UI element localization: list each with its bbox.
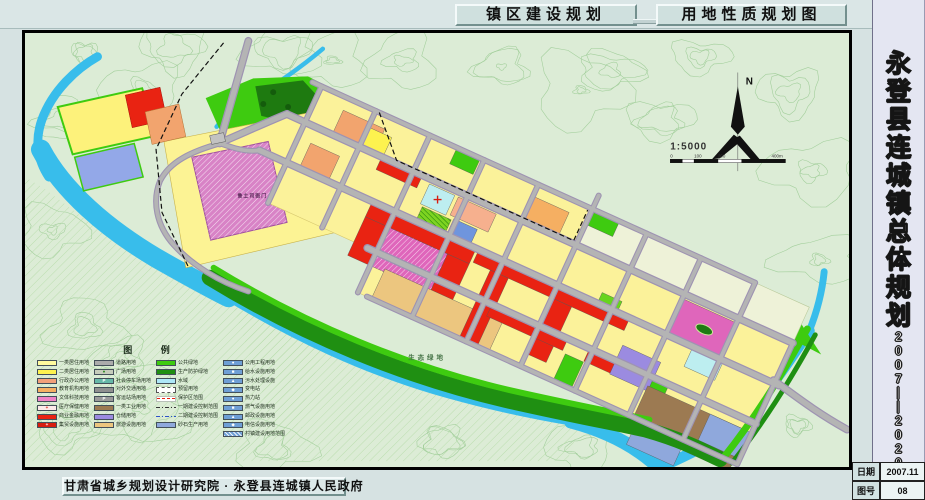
legend-item: 砂石生产用地 — [156, 422, 218, 429]
legend-swatch — [37, 378, 57, 384]
legend-swatch: ▲ — [223, 414, 243, 420]
legend-swatch: ◆ — [223, 387, 243, 393]
legend-item: ▲污水处理设施 — [223, 378, 285, 385]
legend-label: 邮政设施用地 — [245, 414, 275, 419]
legend-item: 一类居住用地 — [37, 360, 89, 367]
legend-item: 二类居住用地 — [37, 369, 89, 376]
legend-swatch: + — [37, 405, 57, 411]
legend-swatch: P — [94, 378, 114, 384]
legend-label: 商业金融用地 — [59, 414, 89, 419]
legend-swatch — [156, 405, 176, 411]
date-value: 2007.11 — [880, 462, 925, 481]
legend-swatch — [156, 387, 176, 393]
sidebar-title-char: 镇 — [886, 190, 911, 218]
legend-item: 旅游设施用地 — [94, 422, 151, 429]
legend-item: 文体科技用地 — [37, 396, 89, 403]
legend-swatch: ■ — [223, 369, 243, 375]
svg-text:生态绿地: 生态绿地 — [408, 353, 446, 362]
legend-swatch — [94, 387, 114, 393]
legend-item: 村镇建设用地范围 — [223, 431, 285, 438]
tab-landuse-map[interactable]: 用地性质规划图 — [656, 4, 847, 26]
legend-label: 保护区范围 — [178, 396, 203, 401]
sidebar-year-char: 2 — [895, 442, 902, 456]
sidebar-title-char: 登 — [886, 78, 911, 106]
svg-text:200: 200 — [718, 153, 726, 158]
legend-label: 热力站 — [245, 396, 260, 401]
legend-item: 行政办公用地 — [37, 378, 89, 385]
sidebar-year-char: 2 — [895, 330, 902, 344]
legend-swatch — [37, 414, 57, 420]
legend-item: ◆电信设施用地 — [223, 422, 285, 429]
legend-item: 道路用地 — [94, 360, 151, 367]
legend-label: 行政办公用地 — [59, 379, 89, 384]
legend-swatch: ■ — [223, 405, 243, 411]
legend-swatch: P — [94, 396, 114, 402]
legend-swatch — [156, 360, 176, 366]
titleblock-table: 日期 2007.11 图号 08 — [852, 462, 925, 500]
legend-swatch — [156, 378, 176, 384]
tab-construction-plan[interactable]: 镇区建设规划 — [455, 4, 637, 26]
legend-label: 集贸设施用地 — [59, 423, 89, 428]
svg-text:100: 100 — [694, 153, 702, 158]
legend-swatch — [37, 396, 57, 402]
legend-title: 图 例 — [93, 343, 213, 356]
legend-item: P社会停车场用地 — [94, 378, 151, 385]
legend-item: +医疗保健用地 — [37, 404, 89, 411]
legend-item: ●热力站 — [223, 396, 285, 403]
legend-label: 一类工业用地 — [116, 405, 146, 410]
legend-swatch: ◆ — [223, 422, 243, 428]
svg-text:N: N — [746, 76, 753, 87]
legend-swatch — [94, 414, 114, 420]
legend-label: 生产防护绿地 — [178, 370, 208, 375]
legend-item: 水域 — [156, 378, 218, 385]
sheet-number-label: 图号 — [852, 481, 880, 500]
legend-swatch — [37, 360, 57, 366]
legend-item: ■燃气设施用地 — [223, 404, 285, 411]
legend-label: 二类居住用地 — [59, 370, 89, 375]
legend-swatch — [37, 387, 57, 393]
date-label: 日期 — [852, 462, 880, 481]
sidebar-year-char: — — [892, 387, 906, 400]
sidebar-title-char: 永 — [886, 50, 911, 78]
legend-item: ●广场用地 — [94, 369, 151, 376]
legend-label: 电信设施用地 — [245, 423, 275, 428]
sidebar-year-char: — — [892, 401, 906, 414]
sidebar-year-char: 0 — [895, 344, 902, 358]
legend-item: 仓储用地 — [94, 413, 151, 420]
legend-item: 预留用地 — [156, 387, 218, 394]
svg-text:1:5000: 1:5000 — [670, 141, 707, 152]
sidebar-year-char: 0 — [895, 358, 902, 372]
legend-item: P客运站场用地 — [94, 396, 151, 403]
svg-text:鲁土司衙门: 鲁土司衙门 — [237, 193, 267, 200]
legend-label: 村镇建设用地范围 — [245, 432, 285, 437]
legend-swatch: ● — [94, 369, 114, 375]
legend-label: 给水设施用地 — [245, 370, 275, 375]
sidebar-title-char: 规 — [886, 274, 911, 302]
legend-item: 一期建设控制范围 — [156, 404, 218, 411]
sidebar-title-char: 县 — [886, 106, 911, 134]
legend-item: 保护区范围 — [156, 396, 218, 403]
legend-swatch: ● — [223, 360, 243, 366]
sidebar-title-char: 总 — [886, 218, 911, 246]
legend-item: 教育机构用地 — [37, 387, 89, 394]
legend-swatch — [94, 360, 114, 366]
sidebar-title-char: 连 — [886, 134, 911, 162]
legend-label: 预留用地 — [178, 387, 198, 392]
map-legend: 图 例 一类居住用地二类居住用地行政办公用地教育机构用地文体科技用地+医疗保健用… — [37, 343, 329, 438]
legend-item: 商业金融用地 — [37, 413, 89, 420]
legend-label: 社会停车场用地 — [116, 379, 151, 384]
legend-label: 污水处理设施 — [245, 379, 275, 384]
legend-label: 砂石生产用地 — [178, 423, 208, 428]
legend-swatch — [156, 396, 176, 402]
legend-label: 二期建设控制范围 — [178, 414, 218, 419]
legend-swatch — [94, 405, 114, 411]
legend-item: 一类工业用地 — [94, 404, 151, 411]
legend-swatch — [156, 369, 176, 375]
legend-label: 医疗保健用地 — [59, 405, 89, 410]
legend-label: 对外交通用地 — [116, 387, 146, 392]
sidebar-title-char: 体 — [886, 246, 911, 274]
legend-label: 一类居住用地 — [59, 361, 89, 366]
legend-label: 文体科技用地 — [59, 396, 89, 401]
sidebar-year-char: 2 — [895, 414, 902, 428]
legend-label: 公用工程用地 — [245, 361, 275, 366]
title-strip: 永登县连城镇总体规划2007——2020 — [872, 0, 925, 462]
sheet-number-value: 08 — [880, 481, 925, 500]
legend-label: 旅游设施用地 — [116, 423, 146, 428]
legend-item: ▲邮政设施用地 — [223, 413, 285, 420]
legend-swatch: ● — [223, 396, 243, 402]
credits-bar: 甘肃省城乡规划设计研究院 · 永登县连城镇人民政府 — [62, 477, 346, 496]
legend-label: 客运站场用地 — [116, 396, 146, 401]
legend-label: 教育机构用地 — [59, 387, 89, 392]
legend-label: 公共绿地 — [178, 361, 198, 366]
legend-label: 仓储用地 — [116, 414, 136, 419]
legend-item: 公共绿地 — [156, 360, 218, 367]
legend-item: ●公用工程用地 — [223, 360, 285, 367]
legend-label: 一期建设控制范围 — [178, 405, 218, 410]
plan-sheet: 镇区建设规划 用地性质规划图 N1:50000100200400m鲁土司衙门生态… — [0, 0, 925, 500]
sidebar-title-char: 划 — [886, 302, 911, 330]
map-frame: N1:50000100200400m鲁土司衙门生态绿地 图 例 一类居住用地二类… — [22, 30, 852, 470]
sidebar-title-char: 城 — [886, 162, 911, 190]
legend-label: 变电站 — [245, 387, 260, 392]
legend-swatch — [37, 369, 57, 375]
legend-swatch — [156, 422, 176, 428]
legend-swatch — [94, 422, 114, 428]
legend-item: ◆变电站 — [223, 387, 285, 394]
legend-label: 广场用地 — [116, 370, 136, 375]
legend-item: 二期建设控制范围 — [156, 413, 218, 420]
legend-label: 道路用地 — [116, 361, 136, 366]
sidebar-year-char: 0 — [895, 428, 902, 442]
legend-label: 燃气设施用地 — [245, 405, 275, 410]
legend-swatch: + — [37, 422, 57, 428]
legend-swatch — [223, 431, 243, 437]
legend-item: 生产防护绿地 — [156, 369, 218, 376]
sidebar-year-char: 7 — [895, 372, 902, 386]
legend-item: ■给水设施用地 — [223, 369, 285, 376]
legend-swatch: ▲ — [223, 378, 243, 384]
legend-item: 对外交通用地 — [94, 387, 151, 394]
legend-swatch — [156, 414, 176, 420]
legend-label: 水域 — [178, 379, 188, 384]
svg-text:400m: 400m — [772, 153, 783, 158]
legend-item: +集贸设施用地 — [37, 422, 89, 429]
